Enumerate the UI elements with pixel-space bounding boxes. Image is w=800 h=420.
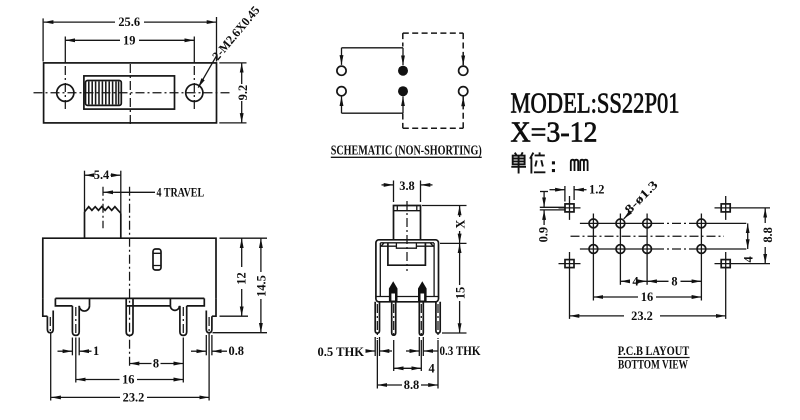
svg-text:P.C.B LAYOUT: P.C.B LAYOUT <box>618 344 690 358</box>
svg-text:0.8: 0.8 <box>229 344 245 358</box>
svg-text:BOTTOM VIEW: BOTTOM VIEW <box>618 358 688 372</box>
svg-text:12: 12 <box>235 272 249 284</box>
svg-text:0.3 THK: 0.3 THK <box>440 344 481 358</box>
svg-text:16: 16 <box>641 290 653 304</box>
svg-text:15: 15 <box>453 287 467 299</box>
svg-text:8: 8 <box>671 274 677 288</box>
svg-text:0.9: 0.9 <box>537 227 551 243</box>
svg-text:16: 16 <box>122 373 134 387</box>
svg-text:14.5: 14.5 <box>254 275 268 297</box>
svg-text:4: 4 <box>742 256 756 262</box>
svg-text:19: 19 <box>123 34 135 48</box>
svg-text:1: 1 <box>93 344 99 358</box>
svg-text:3.8: 3.8 <box>399 179 415 193</box>
svg-text:4: 4 <box>632 274 638 288</box>
svg-text:X: X <box>453 220 467 229</box>
svg-text:MODEL:SS22P01: MODEL:SS22P01 <box>511 89 680 120</box>
svg-text:1.2: 1.2 <box>589 183 605 197</box>
svg-text:8: 8 <box>153 357 159 371</box>
svg-text:23.2: 23.2 <box>123 390 145 404</box>
svg-text:5.4: 5.4 <box>94 168 110 182</box>
svg-text:4: 4 <box>429 361 435 375</box>
svg-text:4 TRAVEL: 4 TRAVEL <box>157 185 205 199</box>
svg-text:SCHEMATIC (NON-SHORTING): SCHEMATIC (NON-SHORTING) <box>331 142 482 157</box>
svg-text:25.6: 25.6 <box>118 15 140 29</box>
svg-text:0.5 THK: 0.5 THK <box>318 345 365 359</box>
svg-text:X=3-12: X=3-12 <box>511 117 598 148</box>
svg-text:8.8: 8.8 <box>404 378 420 392</box>
svg-text:9.2: 9.2 <box>236 85 250 101</box>
svg-text:8.8: 8.8 <box>761 227 775 243</box>
svg-text:23.2: 23.2 <box>631 309 653 323</box>
